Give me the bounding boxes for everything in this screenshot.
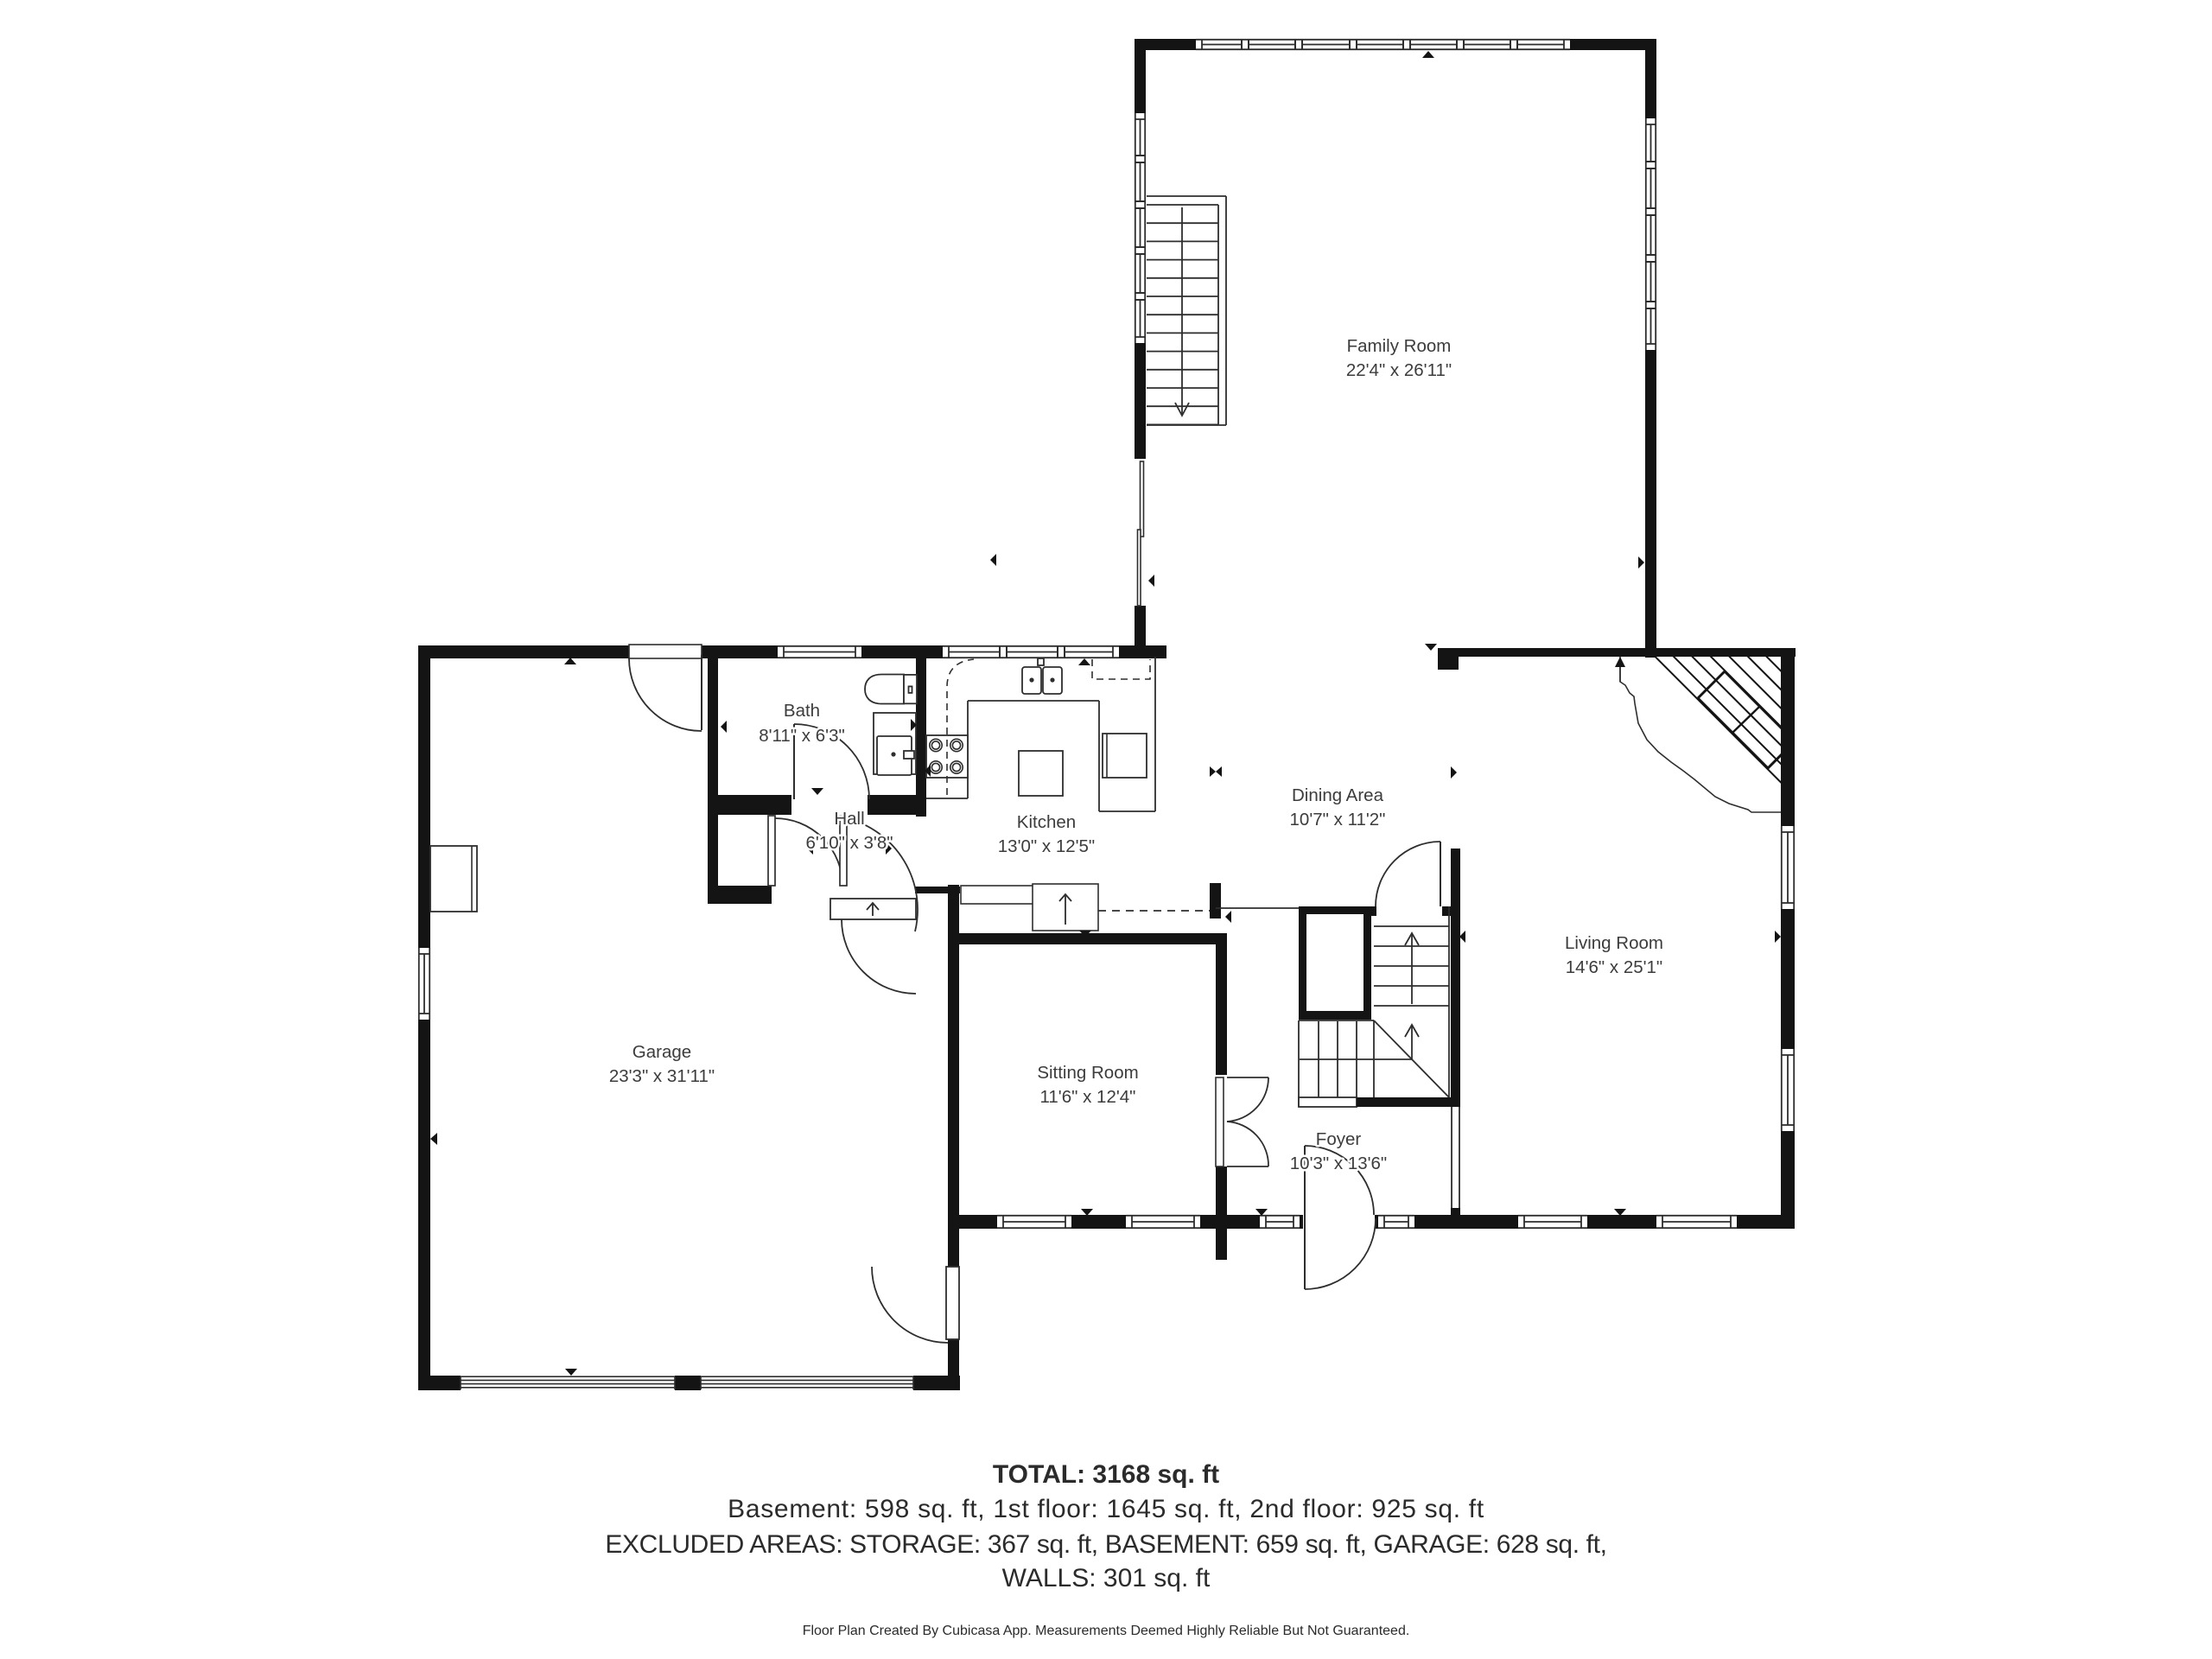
svg-text:Dining Area: Dining Area <box>1292 785 1384 805</box>
svg-text:6'10" x 3'8": 6'10" x 3'8" <box>805 833 893 853</box>
svg-text:Basement: 598 sq. ft, 1st floo: Basement: 598 sq. ft, 1st floor: 1645 sq… <box>728 1495 1484 1523</box>
svg-text:13'0" x 12'5": 13'0" x 12'5" <box>998 836 1095 856</box>
svg-text:10'7" x 11'2": 10'7" x 11'2" <box>1290 810 1386 829</box>
svg-text:10'3" x 13'6": 10'3" x 13'6" <box>1290 1154 1387 1173</box>
svg-text:TOTAL: 3168 sq. ft: TOTAL: 3168 sq. ft <box>993 1460 1219 1489</box>
svg-text:Kitchen: Kitchen <box>1017 812 1076 832</box>
svg-text:Foyer: Foyer <box>1316 1129 1362 1149</box>
svg-text:Sitting Room: Sitting Room <box>1037 1063 1138 1083</box>
svg-text:EXCLUDED AREAS: STORAGE: 367 s: EXCLUDED AREAS: STORAGE: 367 sq. ft, BAS… <box>605 1530 1606 1559</box>
svg-text:14'6" x 25'1": 14'6" x 25'1" <box>1566 957 1662 977</box>
svg-text:Garage: Garage <box>632 1042 691 1062</box>
svg-text:23'3" x 31'11": 23'3" x 31'11" <box>609 1066 715 1086</box>
svg-text:Family Room: Family Room <box>1347 336 1452 356</box>
svg-text:22'4" x 26'11": 22'4" x 26'11" <box>1346 360 1452 380</box>
svg-text:Floor Plan Created By Cubicasa: Floor Plan Created By Cubicasa App. Meas… <box>803 1624 1410 1638</box>
svg-text:Bath: Bath <box>784 701 820 721</box>
svg-text:Living Room: Living Room <box>1565 933 1663 953</box>
svg-text:WALLS: 301 sq. ft: WALLS: 301 sq. ft <box>1002 1564 1211 1592</box>
svg-text:11'6" x 12'4": 11'6" x 12'4" <box>1040 1087 1136 1107</box>
svg-text:8'11" x 6'3": 8'11" x 6'3" <box>759 726 845 746</box>
svg-text:Hall: Hall <box>834 809 864 829</box>
